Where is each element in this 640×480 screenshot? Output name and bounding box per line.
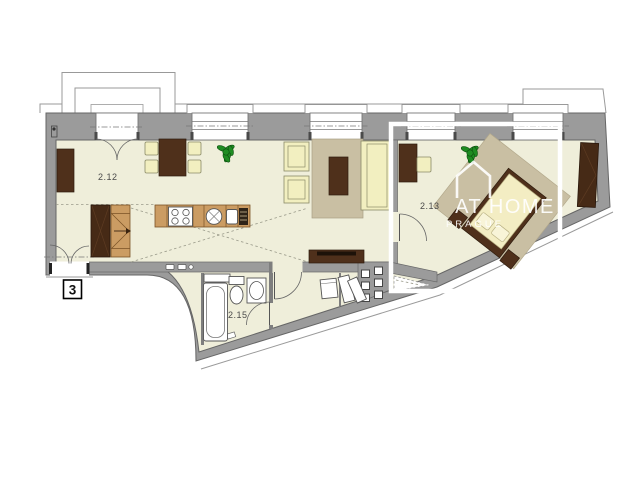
desk-chair (417, 157, 431, 172)
dining-chair (188, 160, 201, 173)
coffee-table (329, 157, 348, 195)
watermark-city: PRAGUE (446, 219, 504, 230)
tall-cabinet (91, 205, 110, 257)
unit-badge: 3 (64, 280, 82, 299)
drainer-icon (239, 208, 248, 225)
dining-chair (188, 142, 201, 155)
floor-plan-drawing: 3 (0, 0, 640, 480)
bathtub-icon (204, 283, 228, 341)
stove-icon (169, 207, 193, 226)
floor-plan-page: 3 (0, 0, 640, 480)
hall-wardrobe (111, 205, 131, 257)
dining-chair (145, 142, 158, 155)
doorbell-icon (189, 265, 193, 269)
shelf (204, 274, 230, 282)
toilet-icon (229, 277, 244, 305)
washing-machine-icon (320, 278, 338, 299)
dining-chair (145, 160, 158, 173)
desk (399, 144, 417, 182)
washbasin-icon (247, 278, 266, 303)
unit-badge-label: 3 (69, 283, 77, 298)
bedroom-wardrobe (577, 143, 598, 208)
switch-icon (178, 265, 186, 270)
balcony (62, 73, 175, 114)
watermark-brand: AT HOME (455, 196, 555, 218)
room-label-bathroom: 2.15 (228, 310, 248, 320)
window-3 (304, 105, 368, 141)
window-2 (186, 105, 254, 141)
intercom-icon (166, 265, 174, 270)
sofa (361, 141, 390, 210)
room-label-bedroom: 2.13 (420, 201, 440, 211)
dining-table (159, 139, 186, 176)
sideboard (57, 149, 74, 192)
tv-stand (309, 250, 364, 263)
room-label-living: 2.12 (98, 172, 118, 182)
kitchen-counter (155, 205, 250, 227)
